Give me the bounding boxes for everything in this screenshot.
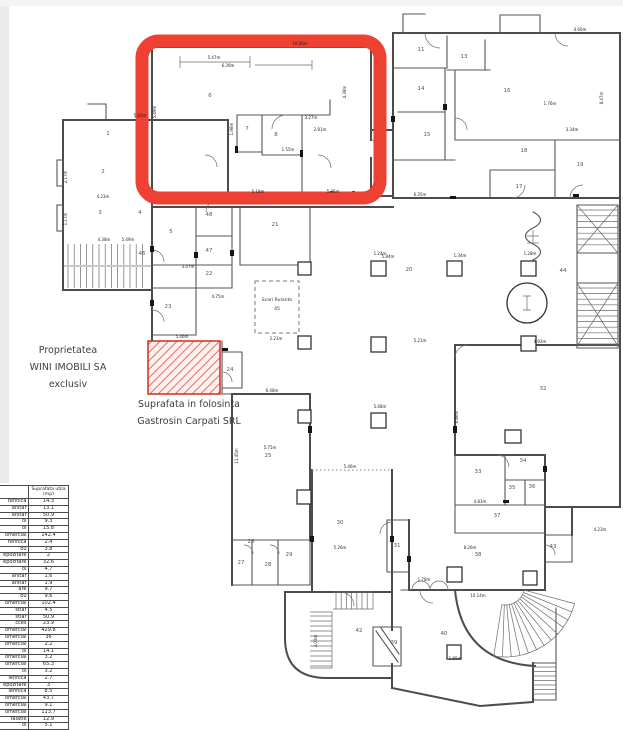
dimension-label: 3.27m <box>305 115 318 120</box>
room-area-cell: 8.5 <box>29 689 69 696</box>
table-header-area: Suprafata utila (mp) <box>29 486 69 499</box>
room-destination-cell: stiar <box>0 607 29 614</box>
room-destination-cell: ol <box>0 526 29 533</box>
room-destination-cell: anitar <box>0 505 29 512</box>
room-number-19: 19 <box>577 162 584 168</box>
dimension-label: 2.17m <box>63 171 68 184</box>
escalator-room-number: 45 <box>274 306 280 312</box>
dimension-label: 2.81m <box>314 127 327 132</box>
room-destination-cell: epozitare <box>0 682 29 689</box>
room-number-36: 36 <box>529 484 536 490</box>
dimension-label: 6.86m <box>454 411 459 424</box>
table-row: anitar50.9 <box>0 512 69 519</box>
dimension-label: 5.18m <box>252 189 265 194</box>
room-number-46: 46 <box>139 251 146 257</box>
room-area-cell: 102.4 <box>29 600 69 607</box>
room-number-6: 6 <box>208 93 212 99</box>
table-row: ol5.1 <box>0 723 69 730</box>
room-number-42: 42 <box>356 628 363 634</box>
room-destination-cell: stiar <box>0 614 29 621</box>
table-row: epozitare2 <box>0 553 69 560</box>
escalator-label: Scari Rulante <box>262 297 293 303</box>
dimension-label: 5.47m <box>208 55 221 60</box>
room-area-cell: 9.3 <box>29 519 69 526</box>
room-area-cell: 1.6 <box>29 573 69 580</box>
room-number-34: 34 <box>520 458 527 464</box>
dimension-label: 1.85m <box>449 656 462 661</box>
room-destination-cell: omercial <box>0 532 29 539</box>
room-destination-cell: omercial <box>0 600 29 607</box>
room-area-cell: 2 <box>29 553 69 560</box>
hatched-area <box>148 341 220 394</box>
room-destination-cell: epozitare <box>0 560 29 567</box>
room-number-15: 15 <box>424 132 431 138</box>
table-row: stiar4.5 <box>0 607 69 614</box>
room-number-30: 30 <box>337 520 344 526</box>
area-table: re ie Suprafata utila (mp) tehnica14.3an… <box>0 485 69 730</box>
dimension-label: 3.34m <box>566 127 579 132</box>
table-row: are9.7 <box>0 587 69 594</box>
table-row: talatie12.9 <box>0 716 69 723</box>
room-destination-cell: tehnica <box>0 499 29 506</box>
room-area-cell: 3.2 <box>29 655 69 662</box>
room-area-cell: 113.7 <box>29 709 69 716</box>
dimension-label: 5.46m <box>176 334 189 339</box>
dimension-label: 8.26m <box>464 545 477 550</box>
dimension-label: 1.34m <box>454 253 467 258</box>
room-destination-cell: Tehnica <box>0 675 29 682</box>
room-destination-cell: ol <box>0 648 29 655</box>
dimension-label: 4.66m <box>574 27 587 32</box>
room-destination-cell: ol <box>0 519 29 526</box>
table-row: omercial113.7 <box>0 709 69 716</box>
room-number-4: 4 <box>138 210 142 216</box>
table-row: omercial102.4 <box>0 600 69 607</box>
room-number-39: 39 <box>391 640 398 646</box>
dimension-label: 1.55m <box>282 147 295 152</box>
room-destination-cell: omercial <box>0 696 29 703</box>
room-number-43: 43 <box>550 544 557 550</box>
room-number-11: 11 <box>418 47 425 53</box>
room-destination-cell: talatie <box>0 716 29 723</box>
room-destination-cell: omercial <box>0 641 29 648</box>
dimension-label: 5.26m <box>334 545 347 550</box>
room-number-31: 31 <box>394 543 401 549</box>
room-area-cell: 4.5 <box>29 607 69 614</box>
room-destination-cell: omercial <box>0 628 29 635</box>
dimension-label: 1.24m <box>374 251 387 256</box>
room-number-22: 22 <box>206 271 213 277</box>
dimension-label: 6.48m <box>266 388 279 393</box>
dimension-label: 4.93m <box>534 339 547 344</box>
ownership-line-2: WINI IMOBILI SA <box>14 359 122 376</box>
room-number-35: 35 <box>509 485 516 491</box>
dimension-label: 5.21m <box>414 338 427 343</box>
dimension-label: 1.17m <box>63 213 68 226</box>
dimension-label: 2.21m <box>270 336 283 341</box>
dimension-label: 4.83m <box>474 499 487 504</box>
room-number-44: 44 <box>560 268 567 274</box>
room-number-40: 40 <box>441 631 448 637</box>
room-area-cell: 32.6 <box>29 560 69 567</box>
room-number-21: 21 <box>272 222 279 228</box>
room-area-cell: 9.7 <box>29 587 69 594</box>
table-row: epozitare32.6 <box>0 560 69 567</box>
dimension-label: 10.14m <box>470 593 485 598</box>
table-row: anitar13.1 <box>0 505 69 512</box>
area-table-wrapper: re ie Suprafata utila (mp) tehnica14.3an… <box>0 485 69 730</box>
dimension-label: 4.23m <box>97 194 110 199</box>
room-number-47: 47 <box>206 248 213 254</box>
table-row: ou3.8 <box>0 546 69 553</box>
room-number-20: 20 <box>406 267 413 273</box>
table-row: tehnica2.4 <box>0 539 69 546</box>
table-row: tehnica14.3 <box>0 499 69 506</box>
room-number-37: 37 <box>494 513 501 519</box>
stair-cross-marks <box>577 205 618 346</box>
room-number-29: 29 <box>286 552 293 558</box>
room-area-cell: 2.7 <box>29 675 69 682</box>
room-destination-cell: ol <box>0 723 29 730</box>
table-row: ol3.2 <box>0 668 69 675</box>
dimension-label: 6.39m <box>222 63 235 68</box>
table-row: Tehnica8.5 <box>0 689 69 696</box>
room-number-23: 23 <box>165 304 172 310</box>
room-area-cell: 23.9 <box>29 621 69 628</box>
table-header-destination: re ie <box>0 486 29 499</box>
room-destination-cell: omercial <box>0 655 29 662</box>
room-destination-cell: anitar <box>0 512 29 519</box>
table-row: omercial65.3 <box>0 662 69 669</box>
dimension-label: 8.47m <box>599 92 604 105</box>
dimension-label: 5.68m <box>374 404 387 409</box>
room-area-cell: 4.7 <box>29 566 69 573</box>
dimension-label: 5.26m <box>327 189 340 194</box>
room-area-cell: 50.9 <box>29 614 69 621</box>
room-area-cell: 2.2 <box>29 641 69 648</box>
room-number-2: 2 <box>101 169 105 175</box>
room-destination-cell: anitar <box>0 580 29 587</box>
room-number-32: 32 <box>540 386 547 392</box>
room-area-cell: 2.4 <box>29 539 69 546</box>
dimension-label: 10.06m <box>292 41 307 46</box>
room-area-cell: 3 <box>29 682 69 689</box>
room-number-16: 16 <box>504 88 511 94</box>
room-destination-cell: are <box>0 587 29 594</box>
room-destination-cell: ou <box>0 594 29 601</box>
room-number-17: 17 <box>516 184 523 190</box>
dimension-label: 4.03m <box>313 635 318 648</box>
dimension-label: 4.23m <box>594 527 607 532</box>
stair-treads <box>63 210 618 694</box>
table-row: ol14.1 <box>0 648 69 655</box>
dimension-label: 1.98m <box>229 123 234 136</box>
room-number-28: 28 <box>265 562 272 568</box>
table-row: ol15.8 <box>0 526 69 533</box>
room-number-27: 27 <box>238 560 245 566</box>
room-number-18: 18 <box>521 148 528 154</box>
table-row: omercial142.4 <box>0 532 69 539</box>
room-destination-cell: Tehnica <box>0 689 29 696</box>
table-row: anitar1.6 <box>0 573 69 580</box>
room-area-cell: 429.8 <box>29 628 69 635</box>
room-destination-cell: ol <box>0 566 29 573</box>
room-destination-cell: epozitare <box>0 553 29 560</box>
room-destination-cell: ol <box>0 668 29 675</box>
room-area-cell: 9.6 <box>29 594 69 601</box>
dimension-label: 6.35m <box>414 192 427 197</box>
room-destination-cell: anitar <box>0 573 29 580</box>
room-destination-cell: omercial <box>0 634 29 641</box>
ownership-line-1: Proprietatea <box>14 342 122 359</box>
table-row: Tehnica2.7 <box>0 675 69 682</box>
dimension-label: 1.78m <box>418 577 431 582</box>
dimension-label: 5.46m <box>344 464 357 469</box>
dimension-label: 1.76m <box>544 101 557 106</box>
room-area-cell: 65.3 <box>29 662 69 669</box>
dimension-label: 3.47m <box>182 264 195 269</box>
usage-note: Suprafata in folosinta Gastrosin Carpati… <box>128 396 250 430</box>
ownership-note: Proprietatea WINI IMOBILI SA exclusiv <box>14 342 122 393</box>
jamb-marks <box>150 104 579 562</box>
dimension-label: 4.38m <box>342 86 347 99</box>
room-number-26: 26 <box>248 539 255 545</box>
room-number-38: 38 <box>475 552 482 558</box>
room-area-cell: 12.9 <box>29 716 69 723</box>
room-area-cell: 142.4 <box>29 532 69 539</box>
room-area-cell: 1.9 <box>29 580 69 587</box>
room-area-cell: 5.1 <box>29 723 69 730</box>
usage-line-1: Suprafata in folosinta <box>128 396 250 413</box>
room-number-3: 3 <box>98 210 102 216</box>
scanned-floor-plan-page: { "colors": { "highlight": "#ee4133", "h… <box>0 0 623 720</box>
table-row: omercial2.2 <box>0 641 69 648</box>
room-area-cell: 14.3 <box>29 499 69 506</box>
room-destination-cell: tehnica <box>0 539 29 546</box>
room-destination-cell: omercial <box>0 702 29 709</box>
room-area-cell: 14.1 <box>29 648 69 655</box>
dimension-label: 4.75m <box>212 294 225 299</box>
table-row: cces23.9 <box>0 621 69 628</box>
columns <box>297 261 537 659</box>
room-number-1: 1 <box>106 131 110 137</box>
table-row: ol4.7 <box>0 566 69 573</box>
table-row: omercial3.2 <box>0 655 69 662</box>
table-row: ou9.6 <box>0 594 69 601</box>
ownership-line-3: exclusiv <box>14 376 122 393</box>
room-number-24: 24 <box>227 367 234 373</box>
table-header-row: re ie Suprafata utila (mp) <box>0 486 69 499</box>
room-number-33: 33 <box>475 469 482 475</box>
table-row: omercial36 <box>0 634 69 641</box>
table-row: omercial9.1 <box>0 702 69 709</box>
room-destination-cell: cces <box>0 621 29 628</box>
table-row: stiar50.9 <box>0 614 69 621</box>
room-area-cell: 3.2 <box>29 668 69 675</box>
table-row: anitar1.9 <box>0 580 69 587</box>
room-number-13: 13 <box>461 54 468 60</box>
dimension-label: 5.83m <box>134 113 147 118</box>
room-area-cell: 9.1 <box>29 702 69 709</box>
room-destination-cell: omercial <box>0 709 29 716</box>
table-row: ol9.3 <box>0 519 69 526</box>
dimension-label: 5.49m <box>152 106 157 119</box>
room-area-cell: 3.8 <box>29 546 69 553</box>
room-number-14: 14 <box>418 86 425 92</box>
room-number-48: 48 <box>206 212 213 218</box>
room-area-cell: 15.8 <box>29 526 69 533</box>
dimension-label: 1.28m <box>524 251 537 256</box>
usage-line-2: Gastrosin Carpati SRL <box>128 413 250 430</box>
dimension-label: 5.49m <box>122 237 135 242</box>
room-number-7: 7 <box>245 126 249 132</box>
dimension-label: 4.38m <box>98 237 111 242</box>
room-number-5: 5 <box>169 229 173 235</box>
table-row: epozitare3 <box>0 682 69 689</box>
dimension-label: 5.75m <box>264 445 277 450</box>
room-destination-cell: ou <box>0 546 29 553</box>
room-area-cell: 50.9 <box>29 512 69 519</box>
room-destination-cell: omercial <box>0 662 29 669</box>
room-number-8: 8 <box>274 132 278 138</box>
table-row: omercial429.8 <box>0 628 69 635</box>
room-number-25: 25 <box>265 453 272 459</box>
room-area-cell: 43.7 <box>29 696 69 703</box>
table-row: omercial43.7 <box>0 696 69 703</box>
dimension-label: 11.45m <box>234 448 239 463</box>
room-area-cell: 13.1 <box>29 505 69 512</box>
room-area-cell: 36 <box>29 634 69 641</box>
